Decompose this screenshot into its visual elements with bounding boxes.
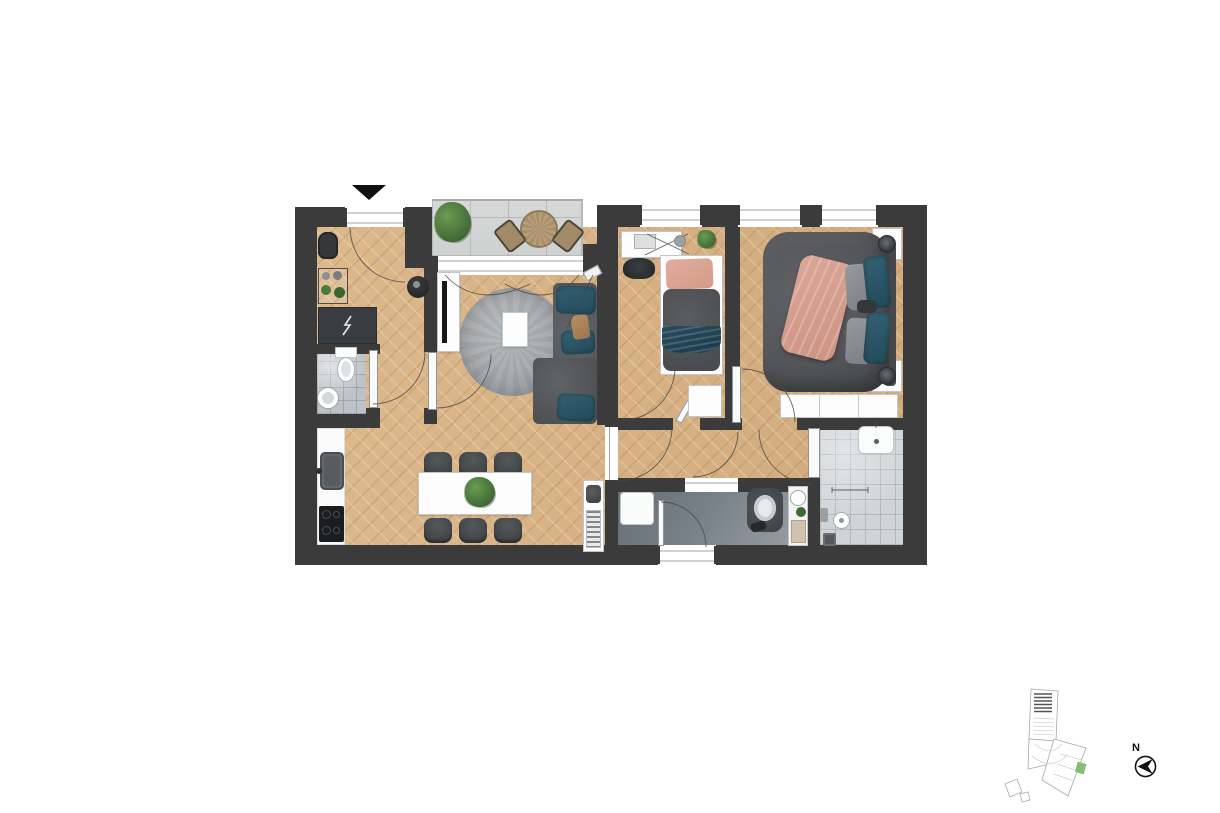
balcony-plant [435,202,471,242]
burner [322,510,331,519]
site-detached-a [1005,779,1022,797]
desk-plant [698,230,716,248]
wall-top-a [597,205,640,227]
bathroom-toilet [747,488,783,532]
wall-left [295,207,317,565]
coat-rack-plant [334,287,345,298]
screenshot-root: N [0,0,1220,813]
floor-drain-round [833,512,850,529]
site-detached-b [1020,792,1030,802]
wall-wc-kitchen [315,414,380,428]
utility-vent [586,510,601,548]
wall-hall-living-stub [424,408,437,424]
sofa-throw [570,314,590,340]
wall-bathroom-top-a [618,478,683,492]
shower-room-door-leaf [808,428,820,478]
wc-toilet [337,357,355,382]
dining-chair [494,518,522,543]
vanity-cabinet [791,520,806,543]
dining-chair [424,518,452,543]
burner [322,526,331,535]
living-room-door-leaf [428,352,437,410]
cabinet-symbol [319,308,376,343]
hallway-door-frame [605,425,618,482]
tv [442,281,447,343]
wc-toilet-bowl [341,361,351,377]
window-bedroom2-right [820,205,878,225]
shower-basin [858,426,894,454]
drain-center [839,518,844,523]
entrance-direction-marker [352,185,386,200]
wardrobe-small [688,385,722,417]
utility-device [586,485,601,503]
dining-table-plant [465,477,495,507]
site-plan [1002,684,1102,806]
table-lamp-bottom [878,367,896,385]
wall-right [903,205,927,565]
entrance-door [345,208,405,227]
coat-rack [318,268,348,304]
single-bed-pillow [665,258,713,290]
shower-mixer [820,508,828,522]
toilet-brush [750,520,767,533]
single-bed-throw [662,326,721,353]
sofa-cushion [556,393,595,422]
balcony-table [520,210,558,248]
wardrobe-large [780,394,898,418]
coffee-table [502,312,528,347]
wc-door-leaf [369,350,378,408]
wall-bottom-b [716,545,927,565]
burner [333,511,340,518]
wall-entry-balcony [405,207,432,268]
vanity [788,486,808,546]
window-bedroom1 [640,205,702,225]
wall-top-b [702,205,738,227]
exterior-door-leaf [658,500,664,546]
bed-pillow-teal [863,311,891,365]
wall-top-c [802,205,820,227]
coat-rack-item [333,271,342,280]
north-label: N [1132,742,1140,754]
north-arrow-icon [1134,755,1157,778]
wall-shower-left [808,478,820,545]
kitchen-faucet [316,468,322,474]
washer [620,492,654,525]
wall-dining-bathroom [605,482,618,545]
wall-top-d [878,205,903,227]
coat-rack-plant [321,285,331,295]
kitchen-sink-bowl [324,456,340,486]
wall-top-entry [295,207,345,227]
pouf-tray [413,281,420,288]
vanity-basin [790,490,806,506]
bed-pillow-small [857,300,877,313]
sofa-cushion [556,285,597,314]
burner [333,527,340,534]
entry-bench [318,232,338,259]
laptop [634,234,656,249]
kitchen-sink [320,452,344,490]
window-bedroom2-left [738,205,802,225]
cooktop [319,506,344,542]
bedroom2-door-leaf [732,366,741,423]
tv-sideboard [437,272,460,352]
stool [623,258,655,279]
dining-chair [459,518,487,543]
north-indicator: N [1126,742,1160,784]
wc-washbasin-bowl [322,392,334,404]
apartment-floor-plan [295,180,927,570]
wall-living-bedroom1 [597,227,618,425]
bathroom-exterior-door [658,546,716,564]
wc-washbasin [317,387,339,409]
vanity-plant [796,507,806,517]
bathroom-door [683,478,740,492]
table-lamp-top [878,235,896,253]
shower-basin-drain [874,439,879,444]
entry-cabinet [318,307,377,344]
coat-rack-item [322,272,330,280]
floor-drain-square [823,533,836,546]
toilet-seat [754,495,776,521]
wall-bedrooms-bottom-a [618,418,673,430]
